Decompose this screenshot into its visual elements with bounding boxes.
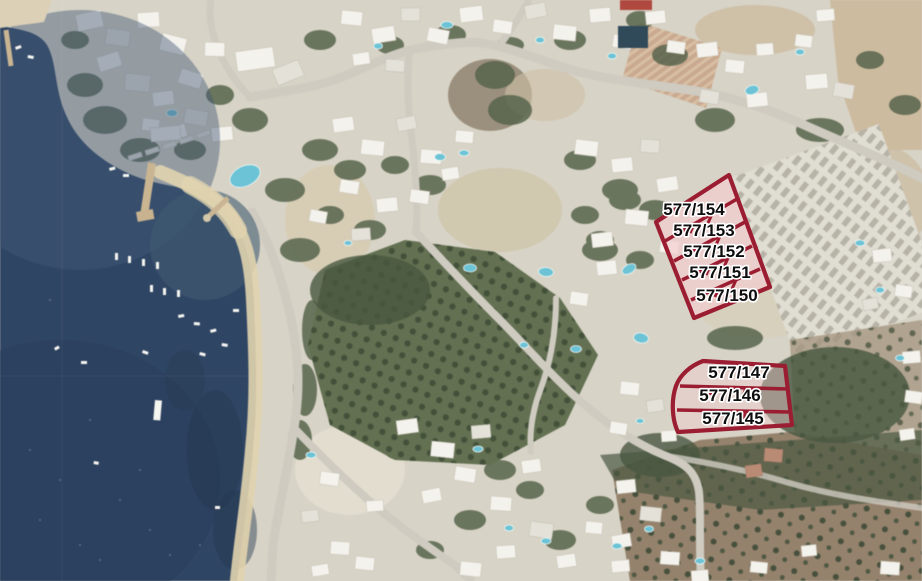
parcel-label: 577/150 — [696, 286, 757, 305]
parcel-overlay-lower: 577/147 577/146 577/145 — [673, 361, 792, 432]
parcel-label: 577/145 — [702, 409, 763, 428]
satellite-map: 577/154 577/153 577/152 577/151 577/150 … — [0, 0, 922, 581]
parcel-label: 577/154 — [663, 200, 725, 219]
parcel-label: 577/151 — [689, 263, 750, 282]
terrain-layer — [0, 0, 922, 581]
map-canvas: 577/154 577/153 577/152 577/151 577/150 … — [0, 0, 922, 581]
parcel-label: 577/146 — [699, 386, 760, 405]
red-court — [620, 0, 652, 10]
parcel-label: 577/153 — [673, 221, 734, 240]
parcel-label: 577/152 — [683, 242, 744, 261]
parcel-label: 577/147 — [708, 363, 769, 382]
tennis-court — [618, 26, 648, 48]
jetty-head — [203, 214, 211, 222]
